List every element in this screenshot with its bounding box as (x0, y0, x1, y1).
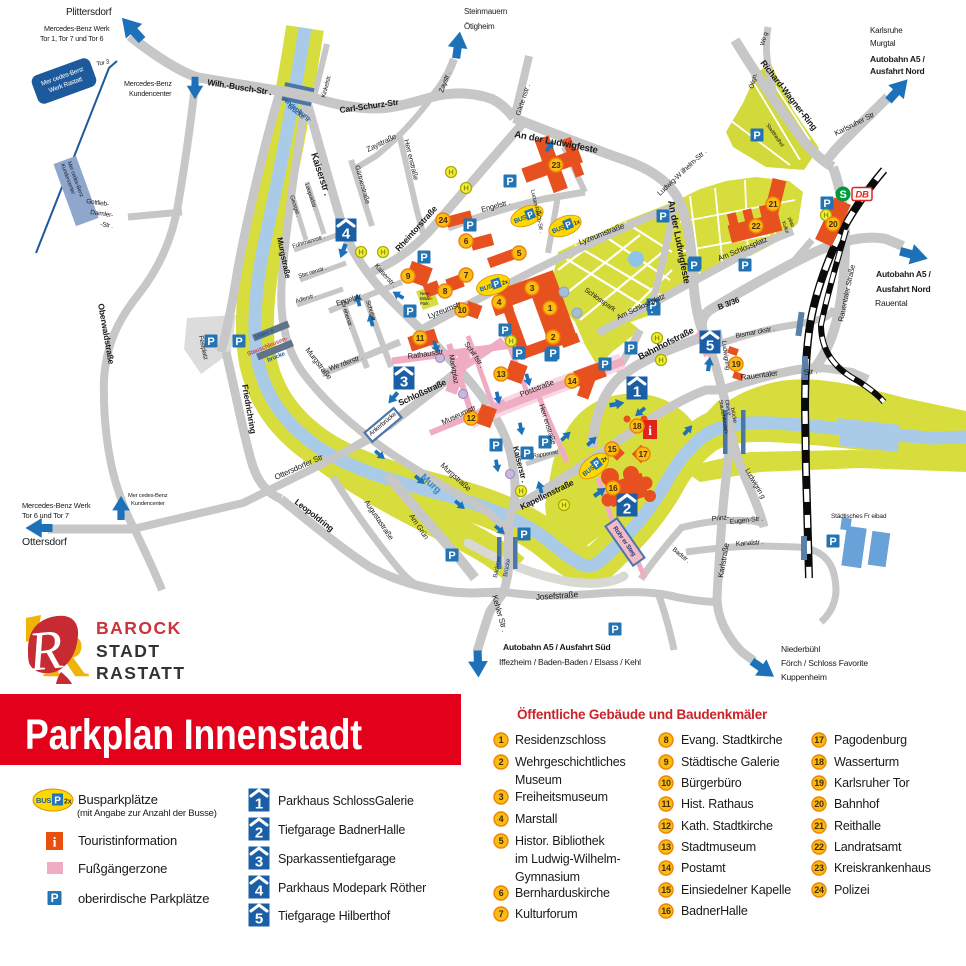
svg-text:Polizei: Polizei (834, 883, 869, 897)
svg-text:Postamt: Postamt (681, 861, 726, 875)
svg-text:3: 3 (255, 854, 263, 871)
svg-text:4: 4 (342, 226, 351, 243)
svg-text:Wasserturm: Wasserturm (834, 755, 899, 769)
svg-text:21: 21 (814, 821, 824, 831)
svg-text:14: 14 (661, 863, 671, 873)
svg-text:Murgtal: Murgtal (870, 39, 896, 48)
svg-text:Ötigheim: Ötigheim (464, 22, 495, 31)
svg-text:Pagodenburg: Pagodenburg (834, 733, 907, 747)
svg-text:24: 24 (438, 215, 448, 225)
svg-text:Karlsruher Tor: Karlsruher Tor (834, 776, 910, 790)
svg-text:Reithalle: Reithalle (834, 819, 881, 833)
svg-text:P: P (659, 211, 666, 223)
svg-text:21: 21 (768, 199, 778, 209)
svg-text:P: P (506, 176, 513, 188)
svg-text:Freiheitsmuseum: Freiheitsmuseum (515, 790, 608, 804)
svg-text:STADT: STADT (96, 641, 161, 661)
svg-text:BAROCK: BAROCK (96, 618, 182, 638)
svg-text:P: P (823, 198, 830, 210)
svg-text:R: R (25, 618, 66, 683)
svg-text:P: P (741, 260, 748, 272)
svg-text:Kreiskrankenhaus: Kreiskrankenhaus (834, 861, 931, 875)
svg-text:Bahnhof: Bahnhof (834, 797, 880, 811)
svg-text:Marstall: Marstall (515, 812, 557, 826)
svg-text:Fußgängerzone: Fußgängerzone (78, 861, 167, 876)
svg-text:11: 11 (416, 333, 425, 343)
svg-text:P: P (466, 220, 473, 232)
svg-text:H: H (463, 184, 468, 193)
svg-text:Kath. Stadtkirche: Kath. Stadtkirche (681, 819, 773, 833)
svg-text:Städtische Galerie: Städtische Galerie (681, 755, 780, 769)
svg-text:13: 13 (496, 369, 506, 379)
svg-text:1: 1 (548, 303, 553, 313)
svg-text:4: 4 (499, 814, 504, 824)
svg-text:17: 17 (814, 735, 824, 745)
svg-text:5: 5 (499, 836, 504, 846)
svg-text:24: 24 (814, 885, 824, 895)
svg-text:P: P (690, 260, 697, 272)
svg-text:RASTATT: RASTATT (96, 663, 186, 683)
svg-text:Kundencenter: Kundencenter (129, 89, 172, 98)
svg-text:P: P (753, 130, 760, 142)
svg-text:Förch / Schloss Favorite: Förch / Schloss Favorite (781, 658, 868, 668)
svg-text:Ausfahrt Nord: Ausfahrt Nord (876, 284, 931, 294)
svg-text:23: 23 (814, 863, 824, 873)
svg-text:1: 1 (255, 796, 263, 813)
svg-text:Tiefgarage Hilberthof: Tiefgarage Hilberthof (278, 909, 391, 923)
svg-text:9: 9 (406, 271, 411, 281)
svg-text:19: 19 (731, 359, 741, 369)
svg-text:4: 4 (255, 883, 264, 900)
svg-text:1: 1 (633, 384, 641, 401)
svg-text:Niederbühl: Niederbühl (781, 644, 820, 654)
svg-text:5: 5 (706, 338, 714, 355)
svg-text:Steinmauern: Steinmauern (464, 7, 507, 16)
svg-text:1: 1 (499, 735, 504, 745)
svg-text:S: S (839, 189, 846, 201)
svg-text:5: 5 (517, 248, 522, 258)
svg-text:4: 4 (497, 297, 502, 307)
svg-text:Mer cedes-Benz: Mer cedes-Benz (128, 493, 168, 499)
svg-text:2: 2 (499, 757, 504, 767)
svg-text:Busparkplätze: Busparkplätze (78, 792, 158, 807)
svg-text:6: 6 (499, 888, 504, 898)
svg-text:6: 6 (464, 236, 469, 246)
svg-text:7: 7 (464, 270, 469, 280)
svg-text:2: 2 (255, 825, 263, 842)
svg-text:P: P (601, 359, 608, 371)
svg-text:Einsiedelner Kapelle: Einsiedelner Kapelle (681, 883, 791, 897)
svg-text:H: H (508, 337, 513, 346)
svg-text:3: 3 (499, 792, 504, 802)
svg-text:H: H (358, 248, 363, 257)
svg-text:Park: Park (420, 301, 429, 306)
svg-text:Landratsamt: Landratsamt (834, 840, 902, 854)
svg-text:Autobahn A5 /: Autobahn A5 / (870, 54, 926, 64)
svg-text:Histor. Bibliothek: Histor. Bibliothek (515, 834, 605, 848)
svg-text:Karlsruhe: Karlsruhe (870, 26, 903, 35)
svg-text:3: 3 (530, 283, 535, 293)
svg-text:5: 5 (255, 911, 263, 928)
svg-text:Tor 6 und Tor 7: Tor 6 und Tor 7 (22, 511, 69, 520)
svg-text:2: 2 (623, 501, 631, 518)
svg-text:Str .: Str . (803, 366, 818, 377)
svg-text:Mercedes-Benz Werk: Mercedes-Benz Werk (44, 24, 110, 33)
svg-text:H: H (658, 356, 663, 365)
svg-text:Tor 1, Tor 7 und Tor 6: Tor 1, Tor 7 und Tor 6 (40, 34, 103, 43)
svg-text:20: 20 (828, 219, 838, 229)
svg-text:BUS: BUS (36, 796, 51, 805)
svg-text:BadnerHalle: BadnerHalle (681, 904, 748, 918)
svg-text:11: 11 (661, 799, 670, 809)
svg-text:16: 16 (661, 906, 671, 916)
svg-text:Wehrgeschichtliches: Wehrgeschichtliches (515, 755, 626, 769)
svg-text:13: 13 (661, 842, 671, 852)
svg-text:15: 15 (661, 885, 671, 895)
svg-text:i: i (648, 424, 652, 439)
svg-text:Tiefgarage BadnerHalle: Tiefgarage BadnerHalle (278, 823, 405, 837)
svg-text:P: P (448, 550, 455, 562)
svg-text:Kundencenter: Kundencenter (131, 501, 165, 507)
svg-text:Autobahn A5 / Ausfahrt Süd: Autobahn A5 / Ausfahrt Süd (503, 642, 611, 652)
svg-text:Parkhaus SchlossGalerie: Parkhaus SchlossGalerie (278, 794, 414, 808)
svg-text:16: 16 (608, 483, 618, 493)
svg-text:P: P (627, 343, 634, 355)
svg-text:Kuppenheim: Kuppenheim (781, 672, 827, 682)
svg-text:Kulturforum: Kulturforum (515, 907, 577, 921)
svg-text:8: 8 (443, 286, 448, 296)
svg-text:Sparkassentiefgarage: Sparkassentiefgarage (278, 852, 396, 866)
svg-text:P: P (420, 252, 427, 264)
svg-text:Bernharduskirche: Bernharduskirche (515, 886, 610, 900)
svg-text:H: H (448, 168, 453, 177)
svg-text:Museum: Museum (515, 773, 562, 787)
svg-text:23: 23 (551, 160, 561, 170)
svg-text:22: 22 (814, 842, 824, 852)
svg-text:Bürgerbüro: Bürgerbüro (681, 776, 742, 790)
svg-text:9: 9 (664, 757, 669, 767)
svg-text:22: 22 (751, 221, 761, 231)
svg-text:Evang. Stadtkirche: Evang. Stadtkirche (681, 733, 783, 747)
svg-text:14: 14 (567, 376, 577, 386)
svg-text:Residenzschloss: Residenzschloss (515, 733, 606, 747)
svg-text:7: 7 (499, 909, 504, 919)
svg-text:P: P (235, 336, 242, 348)
svg-text:Touristinformation: Touristinformation (78, 833, 177, 848)
svg-text:19: 19 (814, 778, 824, 788)
svg-text:P: P (501, 325, 508, 337)
svg-text:P: P (492, 440, 499, 452)
svg-text:Städtisches Fr eibad: Städtisches Fr eibad (831, 513, 887, 520)
svg-text:P: P (406, 306, 413, 318)
svg-text:H: H (518, 487, 523, 496)
svg-text:10: 10 (661, 778, 671, 788)
svg-text:P: P (541, 437, 548, 449)
svg-text:P: P (515, 348, 522, 360)
svg-text:H: H (561, 501, 566, 510)
svg-text:2: 2 (551, 332, 556, 342)
svg-text:(mit Angabe zur Anzahl der Bus: (mit Angabe zur Anzahl der Busse) (77, 808, 217, 819)
svg-text:Mercedes-Benz Werk: Mercedes-Benz Werk (22, 501, 91, 510)
svg-text:Stadtmuseum: Stadtmuseum (681, 840, 756, 854)
svg-text:P: P (611, 624, 618, 636)
svg-text:im Ludwig-Wilhelm-: im Ludwig-Wilhelm- (515, 852, 620, 866)
svg-text:12: 12 (661, 821, 671, 831)
svg-text:DB: DB (855, 190, 869, 201)
svg-text:P: P (520, 529, 527, 541)
svg-text:20: 20 (814, 799, 824, 809)
svg-text:P: P (54, 796, 61, 807)
svg-text:Rauental: Rauental (875, 298, 908, 308)
svg-text:3: 3 (400, 374, 408, 391)
svg-text:Öffentliche Gebäude und Bauden: Öffentliche Gebäude und Baudenkmäler (517, 707, 768, 722)
svg-text:Autobahn A5 /: Autobahn A5 / (876, 269, 932, 279)
svg-text:oberirdische Parkplätze: oberirdische Parkplätze (78, 891, 209, 906)
svg-text:P: P (549, 348, 556, 360)
svg-text:P: P (207, 336, 214, 348)
svg-text:P: P (523, 448, 530, 460)
svg-text:Parkhaus Modepark Röther: Parkhaus Modepark Röther (278, 881, 426, 895)
svg-text:Ausfahrt Nord: Ausfahrt Nord (870, 66, 925, 76)
svg-text:Parkplan Innenstadt: Parkplan Innenstadt (25, 711, 362, 759)
svg-text:8: 8 (664, 735, 669, 745)
svg-text:2x: 2x (64, 799, 72, 806)
svg-text:P: P (51, 891, 59, 905)
svg-text:Plittersdorf: Plittersdorf (66, 7, 112, 18)
svg-text:15: 15 (607, 444, 617, 454)
svg-text:18: 18 (632, 421, 642, 431)
svg-text:17: 17 (638, 449, 648, 459)
svg-text:Gymnasium: Gymnasium (515, 870, 580, 884)
svg-text:Mercedes-Benz: Mercedes-Benz (124, 79, 172, 88)
svg-text:Iffezheim / Baden-Baden / Elsa: Iffezheim / Baden-Baden / Elsass / Kehl (499, 657, 641, 667)
svg-text:H: H (380, 248, 385, 257)
svg-text:Hist. Rathaus: Hist. Rathaus (681, 797, 753, 811)
svg-text:18: 18 (814, 757, 824, 767)
svg-text:Ottersdorf: Ottersdorf (22, 536, 67, 548)
svg-text:i: i (53, 836, 57, 851)
svg-text:P: P (829, 536, 836, 548)
